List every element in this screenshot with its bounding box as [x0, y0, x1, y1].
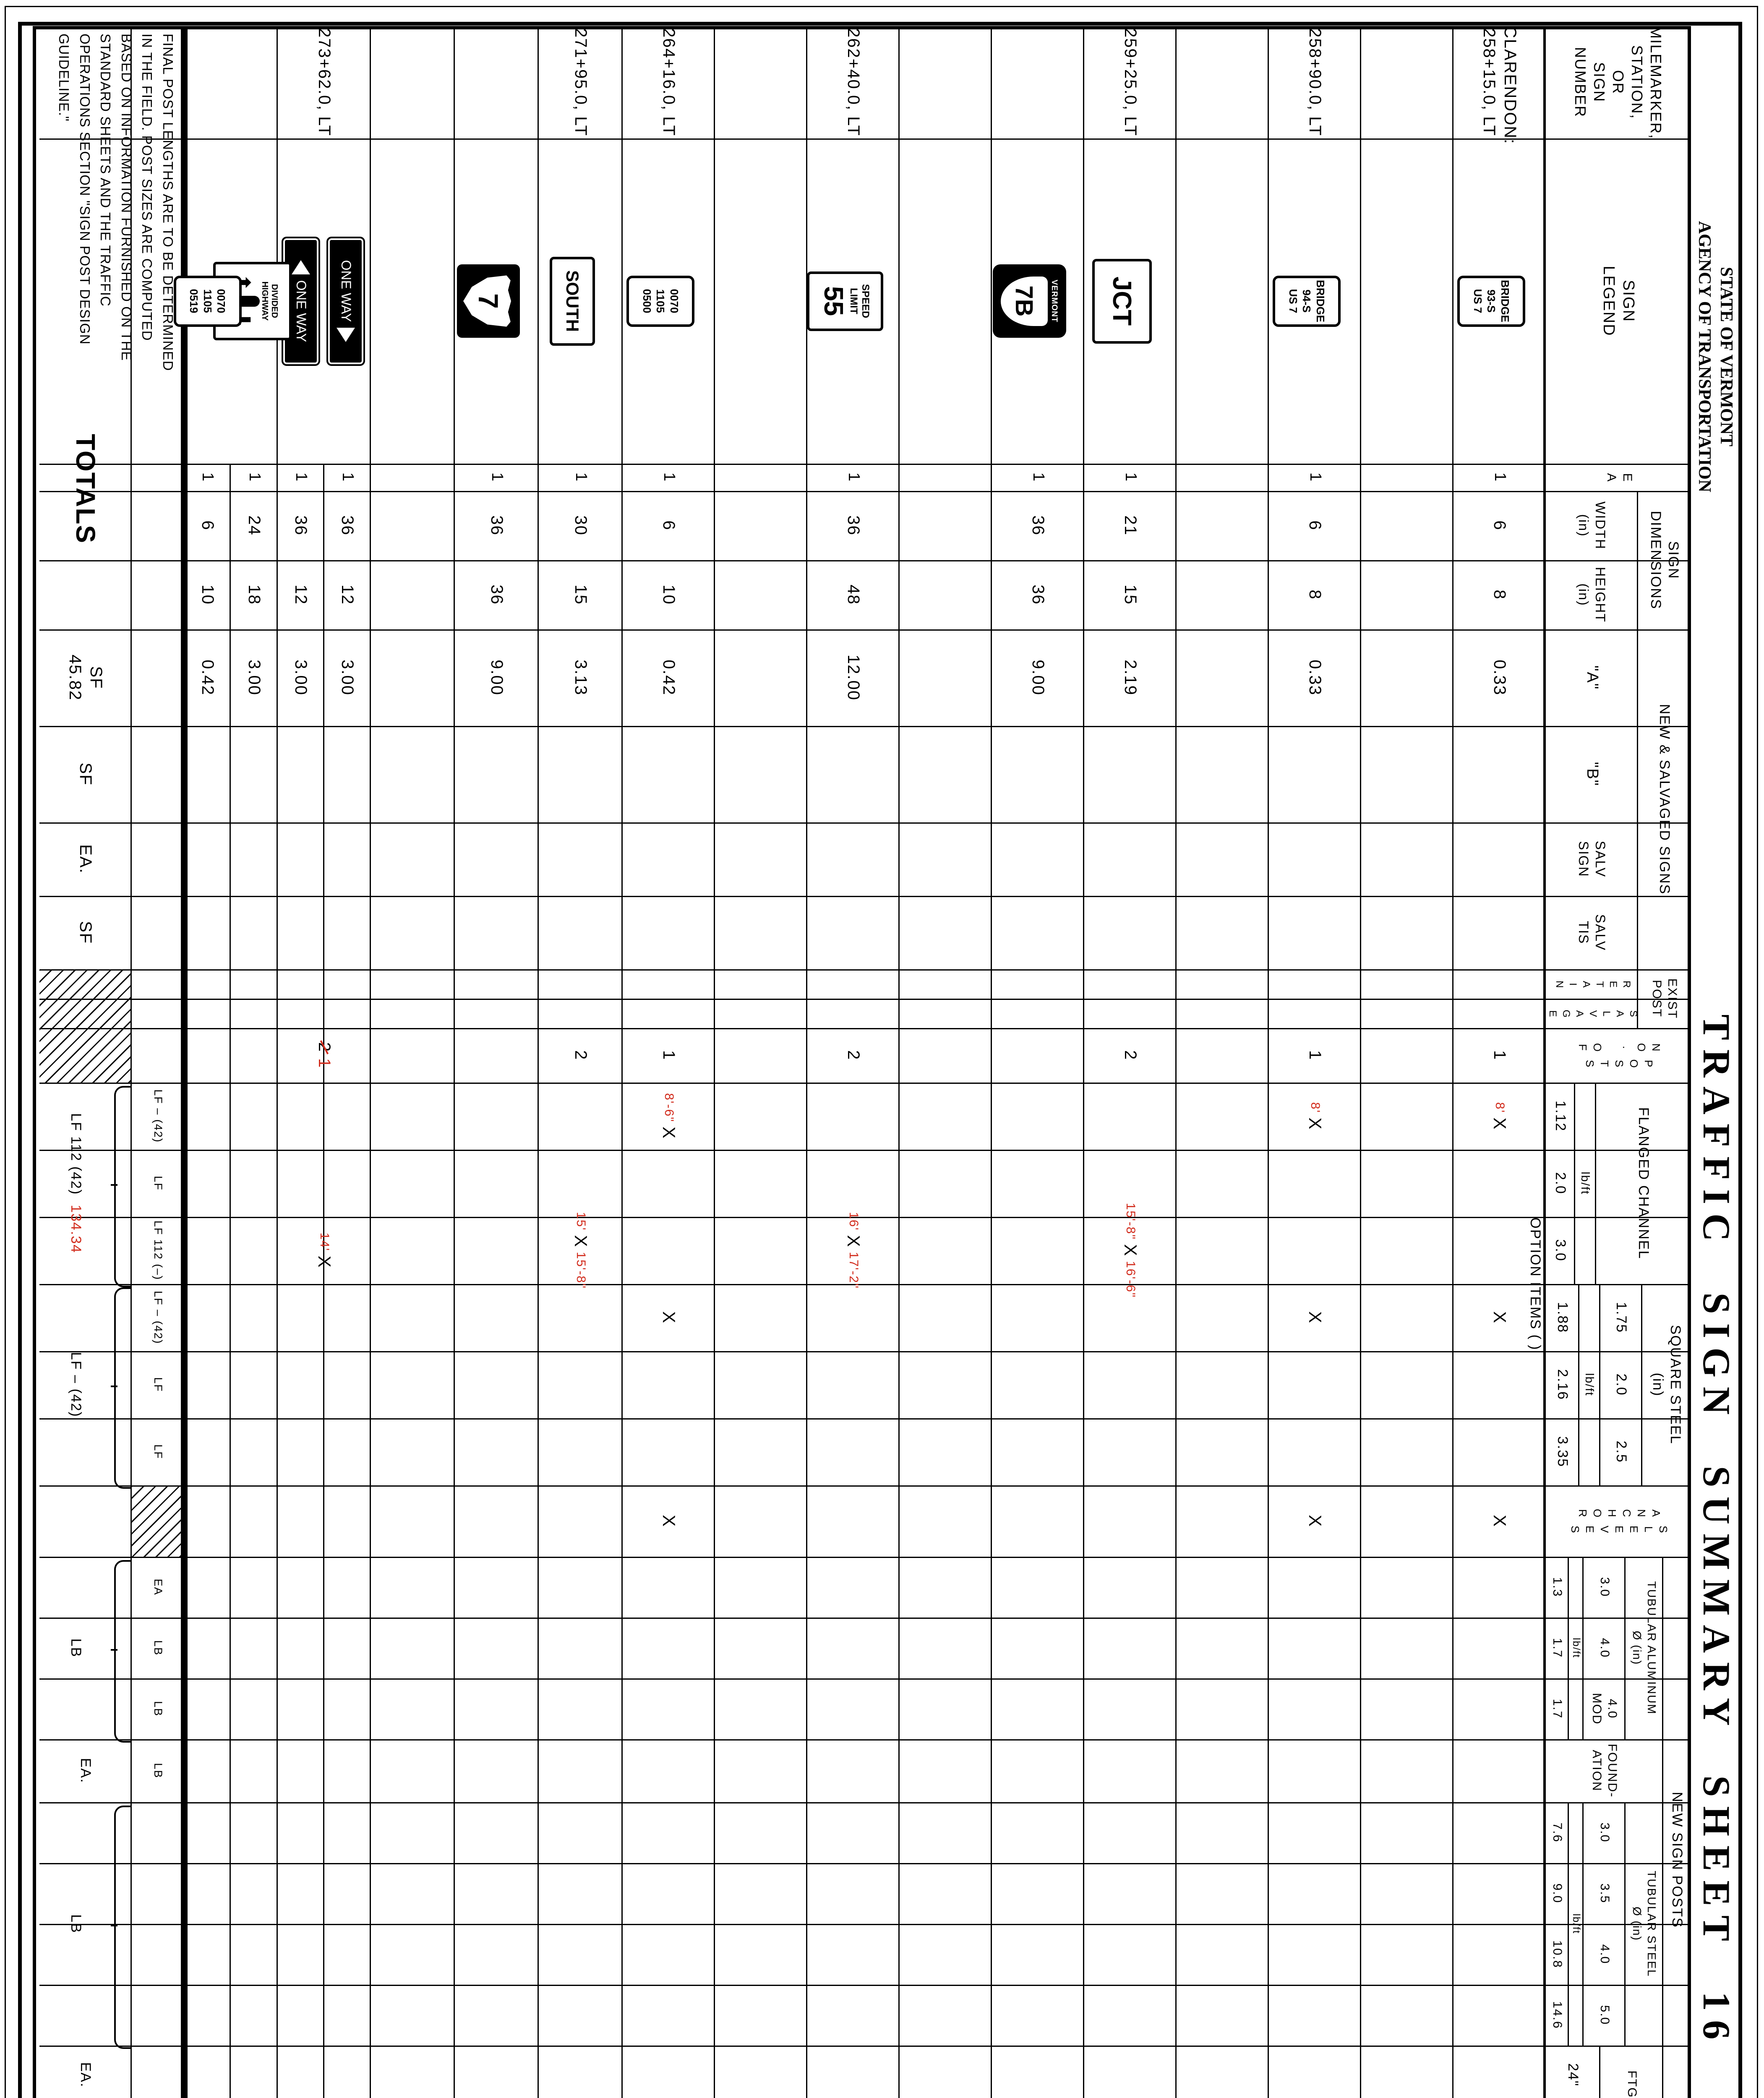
row-2-height: 8 [1269, 560, 1361, 629]
sheet-element: 8'-6" [661, 1093, 677, 1122]
grid-line [39, 1802, 1691, 1803]
sheet-element: SALVAGE [1545, 1008, 1639, 1019]
sheet-element: 8' [1307, 1102, 1323, 1113]
row-14-height-1: 10 [184, 560, 231, 629]
sheet-element: (in) [1649, 1284, 1667, 1485]
row-10-height: 15 [539, 560, 623, 629]
header-ss-value-2: 3.35 [1546, 1418, 1579, 1485]
row-2-station: 258+90.0, LT [1269, 26, 1361, 138]
row-13-no-of-posts: 21 [278, 1028, 371, 1083]
totals-salv-tis: SF [39, 896, 132, 969]
header-ea: EA [1546, 464, 1691, 491]
sheet-element: FINAL POST LENGTHS ARE TO BE DETERMINED [158, 34, 179, 371]
row-5-area-a: 9.00 [992, 629, 1084, 726]
header-retain: RETAIN [1546, 969, 1638, 999]
sheet-element: (in) [1575, 491, 1592, 560]
sheet-element: ATION [1589, 1739, 1605, 1802]
sheet-element: 264+16.0, LT [658, 26, 679, 138]
header-width: WIDTH(in) [1546, 491, 1638, 560]
header-ts-value-2: 10.8 [1546, 1924, 1569, 1985]
units-ta30: EA [132, 1557, 184, 1618]
totals-fc-group: LF 112 (42) 134.34 [39, 1083, 112, 1284]
sign-legend-route_marker: 007011050500 [626, 276, 694, 327]
header-tubular-aluminum: TUBULAR ALUMINUMØ (in) [1626, 1557, 1663, 1739]
row-2-width: 6 [1269, 491, 1361, 560]
grid-line [39, 1678, 1691, 1680]
header-fc-value-1: 2.0 [1546, 1150, 1575, 1217]
sheet-element: 259+25.0, LT [1120, 26, 1141, 138]
header-new-sign-posts: NEW SIGN POSTS [1663, 1557, 1691, 2098]
sign-legend-route_marker: 007011050519 [174, 276, 242, 327]
row-14-area-a-1: 0.42 [184, 629, 231, 726]
row-0-height: 8 [1453, 560, 1546, 629]
header-flanged-channel: FLANGED CHANNEL [1596, 1083, 1691, 1284]
sheet-element: POSTS [1582, 1057, 1655, 1070]
row-0-ea: 1 [1453, 464, 1546, 491]
header-foundation: FOUND-ATION [1546, 1739, 1663, 1802]
header-ftg-size: FTG. SIZE [1600, 2046, 1663, 2098]
sign-legend-plaque: JCT [1092, 259, 1152, 344]
header-ts-value-0: 7.6 [1546, 1802, 1569, 1863]
row-14-ea-0: 1 [231, 464, 278, 491]
row-5-ea: 1 [992, 464, 1084, 491]
grid-line [39, 1418, 1691, 1420]
grid-line [39, 1150, 1691, 1151]
row-9-mark-ss175: X [623, 1267, 715, 1368]
header-ts-size-3: 5.0 [1584, 1985, 1626, 2046]
sign-legend-bridge_marker: BRIDGE93-SUS 7 [1457, 276, 1525, 327]
header-salv-sign: SALVSIGN [1546, 822, 1638, 896]
grid-line [39, 1863, 1691, 1864]
row-7-area-a: 12.00 [807, 629, 900, 726]
sign-legend-one-way-right: ONE WAY [326, 237, 365, 366]
header-height: HEIGHT(in) [1546, 560, 1638, 629]
header-ss-size-2: 2.5 [1600, 1418, 1642, 1485]
sheet-element: IN THE FIELD. POST SIZES ARE COMPUTED [137, 34, 158, 341]
row-13-ea-1: 1 [278, 464, 324, 491]
sheet-element: LIMIT [848, 288, 859, 314]
totals-a: SF45.82 [39, 629, 132, 726]
sheet-element: SLEEVES [1567, 1523, 1670, 1535]
row-13-station: 273+62.0, LT [278, 26, 371, 138]
sheet-element: SIGN [1618, 138, 1639, 464]
row-9-width: 6 [623, 491, 715, 560]
header-ta-value-2: 1.7 [1546, 1678, 1569, 1739]
header-ts-size-2: 4.0 [1584, 1924, 1626, 1985]
row-7-mark-fc30: 16'X17'-2" [807, 1200, 900, 1301]
row-5-height: 36 [992, 560, 1084, 629]
grid-line [39, 896, 1691, 897]
row-2-ea: 1 [1269, 464, 1361, 491]
row-4-height: 15 [1084, 560, 1177, 629]
sheet-element: X [843, 1235, 865, 1247]
header-salv-tis: SALVTIS [1546, 896, 1638, 969]
row-7-station: 262+40.0, LT [807, 26, 900, 138]
sheet-element: X [1489, 1515, 1511, 1527]
sheet-element: BRIDGE [1498, 280, 1512, 322]
sheet-element: STANDARD SHEETS AND THE TRAFFIC [95, 34, 116, 307]
row-10-width: 30 [539, 491, 623, 560]
sheet-element: FOUND- [1605, 1739, 1620, 1802]
grid-line [39, 1985, 1691, 1986]
header-salvage: SALVAGE [1546, 999, 1638, 1028]
row-9-station: 264+16.0, LT [623, 26, 715, 138]
grid-line [991, 26, 992, 2098]
row-0-mark-fc112: 8'X [1453, 1066, 1546, 1166]
sheet-element: STATION, [1628, 26, 1647, 138]
row-14-width-0: 24 [231, 491, 278, 560]
sheet-element: ONE WAY [293, 280, 309, 342]
grid-line [39, 138, 1691, 140]
row-11-area-a: 9.00 [455, 629, 539, 726]
row-11-height: 36 [455, 560, 539, 629]
sheet-element: LEGEND [1599, 138, 1619, 464]
row-4-station: 259+25.0, LT [1084, 26, 1177, 138]
sheet-element: X [658, 1127, 680, 1139]
header-ts-size-1: 3.5 [1584, 1863, 1626, 1924]
row-9-mark-anch: X [623, 1469, 715, 1573]
sheet-element: 134.34 [67, 1205, 85, 1253]
header-ss-size-0: 1.75 [1600, 1284, 1642, 1351]
sheet-element: RETAIN [1552, 979, 1632, 989]
sheet-element: 8' [1492, 1102, 1508, 1113]
sheet-element: MILEMARKER, [1647, 26, 1666, 138]
grid-line [39, 822, 1691, 824]
sheet-element: MOD [1589, 1678, 1605, 1739]
units-anchor-hatch [132, 1485, 184, 1557]
header-fc-lbft: lb/ft [1575, 1083, 1596, 1284]
row-9-height: 10 [623, 560, 715, 629]
sheet-element: X [1304, 1117, 1326, 1130]
grid-line [39, 1618, 1691, 1619]
sheet-element: 0519 [187, 289, 201, 313]
sheet-element: ONE WAY [338, 260, 354, 322]
header-col-a: "A" [1546, 629, 1638, 726]
sheet-element: SPEED [859, 284, 871, 318]
header-ta-size-1: 4.0 [1584, 1618, 1626, 1678]
sheet-element: FLANGED CHANNEL [1635, 1083, 1653, 1284]
sheet-element: 17'-2" [845, 1252, 861, 1289]
grid-line [39, 1351, 1691, 1352]
sheet-element: 93-S [1485, 290, 1498, 313]
sheet-element: X [313, 1256, 336, 1268]
grid-line [39, 1083, 1691, 1084]
grid-line [39, 1924, 1691, 1925]
row-13-width-0: 36 [324, 491, 371, 560]
sheet-element: TUBULAR ALUMINUM [1644, 1557, 1659, 1739]
sheet-element: 94-S [1300, 290, 1314, 313]
row-2-mark-anch: X [1269, 1469, 1361, 1573]
row-0-width: 6 [1453, 491, 1546, 560]
totals-foundation: EA. [39, 1739, 132, 1802]
row-4-mark-fc30: 15'-8"X16'-6" [1084, 1200, 1177, 1301]
sheet-element: 45.82 [65, 629, 86, 726]
sheet-element: US 7 [1471, 289, 1485, 313]
sheet-element: 0500 [640, 289, 654, 313]
header-sign-legend: SIGNLEGEND [1546, 138, 1691, 464]
sheet-element: X [1489, 1117, 1511, 1130]
row-4-width: 21 [1084, 491, 1177, 560]
sheet-element: OPERATIONS SECTION "SIGN POST DESIGN [75, 34, 96, 344]
row-2-mark-fc112: 8'X [1269, 1066, 1361, 1166]
row-10-ea: 1 [539, 464, 623, 491]
row-9-area-a: 0.42 [623, 629, 715, 726]
header-new-salvaged: NEW & SALVAGED SIGNS [1638, 629, 1691, 969]
row-11-ea: 1 [455, 464, 539, 491]
sheet-element: 14' [316, 1232, 332, 1251]
sheet-element: 1 [314, 1058, 335, 1068]
sheet-element: DIVIDEDHIGHWAY [260, 282, 279, 321]
totals-brace-fc [114, 1086, 131, 1287]
sheet-element: 15' [573, 1212, 589, 1231]
header-ta-value-0: 1.3 [1546, 1557, 1569, 1618]
sheet-element: VERMONT [1049, 280, 1059, 323]
sheet-element: SQUARE STEEL [1667, 1284, 1685, 1485]
row-7-ea: 1 [807, 464, 900, 491]
units-ss25: LF [132, 1418, 184, 1485]
sign-legend-us-shield: 7 [457, 264, 520, 338]
sheet-element: 0070 [667, 289, 681, 313]
row-0-area-a: 0.33 [1453, 629, 1546, 726]
row-13-area-a-0: 3.00 [324, 629, 371, 726]
totals-ftg24: EA. [39, 2046, 132, 2098]
sheet-element: BASED ON INFORMATION FURNISHED ON THE [116, 34, 137, 361]
units-fc30: LF 112 (–) [132, 1217, 184, 1284]
sheet-element: NO. OF [1574, 1041, 1662, 1053]
totals-ss-group: LF – (42) [39, 1284, 112, 1485]
header-ss-value-0: 1.88 [1546, 1284, 1579, 1351]
traffic-sign-summary-sheet: STATE OF VERMONT AGENCY OF TRANSPORTATIO… [0, 0, 1764, 2098]
sign-legend-vt-shield: VERMONT7B [993, 264, 1067, 338]
header-col-b: "B" [1546, 726, 1638, 822]
totals-brace-ts [114, 1806, 131, 2049]
sheet-element: 7 [463, 274, 514, 329]
header-ta-value-1: 1.7 [1546, 1618, 1569, 1678]
sheet-element: SIGN [1575, 822, 1592, 896]
sheet-element: SALV [1592, 822, 1609, 896]
sign-legend-bridge_marker: BRIDGE94-SUS 7 [1273, 276, 1341, 327]
units-ta40m: LB [132, 1678, 184, 1739]
sheet-element: CLARENDON: [1500, 26, 1521, 138]
totals-ts-group: LB [39, 1802, 112, 2046]
totals-salv-sign: EA. [39, 822, 132, 896]
header-ta-size-0: 3.0 [1584, 1557, 1626, 1618]
header-ta-lbft: lb/ft [1569, 1557, 1584, 1739]
sheet-element: 258+15.0, LT [1479, 26, 1500, 138]
row-2-mark-ss175: X [1269, 1267, 1361, 1368]
sheet-element: (in) [1575, 560, 1592, 629]
sheet-element: SF [86, 629, 107, 726]
totals-label: TOTALS [39, 420, 132, 558]
header-ftg-value-0: 24" [1546, 2046, 1600, 2098]
row-10-mark-fc30: 15'X15'-8" [539, 1200, 623, 1301]
sheet-element: ANCHOR [1574, 1507, 1662, 1519]
row-13-width-1: 36 [278, 491, 324, 560]
row-7-height: 48 [807, 560, 900, 629]
sheet-element: SIGN NUMBER [1571, 26, 1609, 138]
sheet-element: Ø (in) [1630, 1557, 1644, 1739]
screenshot-page: STATE OF VERMONT AGENCY OF TRANSPORTATIO… [0, 0, 1764, 2098]
sheet-element: 7B [1001, 277, 1048, 326]
sheet-element: GUIDELINE." [54, 34, 75, 122]
header-milemarker: MILEMARKER,STATION,ORSIGN NUMBER [1546, 26, 1691, 138]
row-4-no-of-posts: 2 [1084, 1028, 1177, 1083]
sheet-element: X [1304, 1311, 1326, 1324]
row-4-area-a: 2.19 [1084, 629, 1177, 726]
sheet-element: US 7 [1286, 289, 1300, 313]
header-ts-value-3: 14.6 [1546, 1985, 1569, 2046]
sheet-element: X [1489, 1311, 1511, 1324]
sheet-element: 16' [845, 1212, 861, 1231]
sheet-element: DIVIDED [269, 282, 279, 321]
sheet-element: HEIGHT [1592, 560, 1609, 629]
sheet-element: X [658, 1311, 680, 1324]
sheet-element: OR [1609, 26, 1628, 138]
sheet-element: EA [1602, 470, 1634, 484]
totals-brace-ta [114, 1560, 131, 1743]
sheet-element: 4.0 [1605, 1678, 1620, 1739]
grid-line [39, 726, 1691, 727]
final-post-lengths-note: FINAL POST LENGTHS ARE TO BE DETERMINEDI… [40, 34, 178, 420]
sheet-element: 1105 [654, 289, 668, 313]
sheet-element: X [570, 1235, 592, 1247]
header-no-of-posts: NO. OFPOSTS [1546, 1028, 1691, 1083]
header-ta-size-2: 4.0MOD [1584, 1678, 1626, 1739]
totals-exist-hatch [39, 969, 132, 1083]
row-10-station: 271+95.0, LT [539, 26, 623, 138]
row-9-mark-fc112: 8'-6"X [623, 1066, 715, 1166]
header-anchor-sleeves: ANCHORSLEEVES [1546, 1485, 1691, 1557]
sheet-element: 16'-6" [1122, 1261, 1138, 1298]
sign-legend-speed-limit: SPEEDLIMIT55 [807, 271, 883, 331]
sheet-element [292, 260, 311, 274]
sign-legend-plaque: SOUTH [550, 257, 595, 346]
units-ta40: LB [132, 1618, 184, 1678]
sheet-element: 15'-8" [573, 1252, 589, 1289]
grid-line [39, 969, 1691, 971]
sheet-element: 55 [819, 286, 847, 316]
grid-line [39, 1739, 1691, 1741]
sheet-element: X [658, 1515, 680, 1527]
row-2-area-a: 0.33 [1269, 629, 1361, 726]
sheet-element: 271+95.0, LT [570, 26, 591, 138]
grid-line [39, 2046, 1691, 2047]
sheet-element: WIDTH [1592, 491, 1609, 560]
header-ss-value-1: 2.16 [1546, 1351, 1579, 1418]
sheet-element: X [1119, 1244, 1142, 1257]
sheet-element: 1105 [201, 289, 215, 313]
row-7-no-of-posts: 2 [807, 1028, 900, 1083]
row-11-width: 36 [455, 491, 539, 560]
row-14-width-1: 6 [184, 491, 231, 560]
row-13-mark-fc30: 14'X [278, 1200, 371, 1301]
header-fc-value-2: 3.0 [1546, 1217, 1575, 1284]
row-14-area-a-0: 3.00 [231, 629, 278, 726]
sheet-element [337, 328, 355, 342]
row-4-ea: 1 [1084, 464, 1177, 491]
totals-ta-group: LB [39, 1557, 112, 1739]
row-10-area-a: 3.13 [539, 629, 623, 726]
row-0-mark-anch: X [1453, 1469, 1546, 1573]
grid-line [39, 999, 1691, 1000]
sheet-element: TIS [1575, 896, 1592, 969]
grid-line [454, 26, 455, 2098]
row-14-height-0: 18 [231, 560, 278, 629]
header-fc-value-0: 1.12 [1546, 1083, 1575, 1150]
row-0-mark-ss175: X [1453, 1267, 1546, 1368]
header-ts-value-1: 9.0 [1546, 1863, 1569, 1924]
units-ss20: LF [132, 1351, 184, 1418]
sheet-element: SALV [1592, 896, 1609, 969]
grid-line [39, 1485, 1691, 1487]
row-7-width: 36 [807, 491, 900, 560]
row-13-area-a-1: 3.00 [278, 629, 324, 726]
header-ss-size-1: 2.0 [1600, 1351, 1642, 1418]
units-fc112: LF – (42) [132, 1083, 184, 1150]
sheet-element: X [1304, 1515, 1326, 1527]
totals-b: SF [39, 726, 132, 822]
row-10-no-of-posts: 2 [539, 1028, 623, 1083]
header-ts-size-0: 3.0 [1584, 1802, 1626, 1863]
totals-brace-ss [114, 1287, 131, 1489]
sheet-element: 262+40.0, LT [843, 26, 864, 138]
sheet-element: 273+62.0, LT [314, 26, 335, 138]
sheet-element: 258+90.0, LT [1305, 26, 1326, 138]
sheet-element: NEW & SALVAGED SIGNS [1656, 629, 1674, 969]
row-13-height-0: 12 [324, 560, 371, 629]
row-13-height-1: 12 [278, 560, 324, 629]
units-fc20: LF [132, 1150, 184, 1217]
sheet-element: HIGHWAY [260, 282, 269, 321]
units-found: LB [132, 1739, 184, 1802]
sheet-element: 0070 [214, 289, 228, 313]
sheet-element: 2 [314, 1042, 335, 1052]
row-9-ea: 1 [623, 464, 715, 491]
header-ss-lbft: lb/ft [1579, 1284, 1600, 1485]
header-square-steel: SQUARE STEEL(in) [1642, 1284, 1691, 1485]
sheet-element: BRIDGE [1313, 280, 1327, 322]
units-ss175: LF – (42) [132, 1284, 184, 1351]
sheet-element: 15'-8" [1122, 1203, 1138, 1240]
row-14-ea-1: 1 [184, 464, 231, 491]
row-5-width: 36 [992, 491, 1084, 560]
row-13-ea-0: 1 [324, 464, 371, 491]
row-0-station: CLARENDON:258+15.0, LT [1453, 26, 1546, 138]
grid-line [39, 1557, 1691, 1558]
